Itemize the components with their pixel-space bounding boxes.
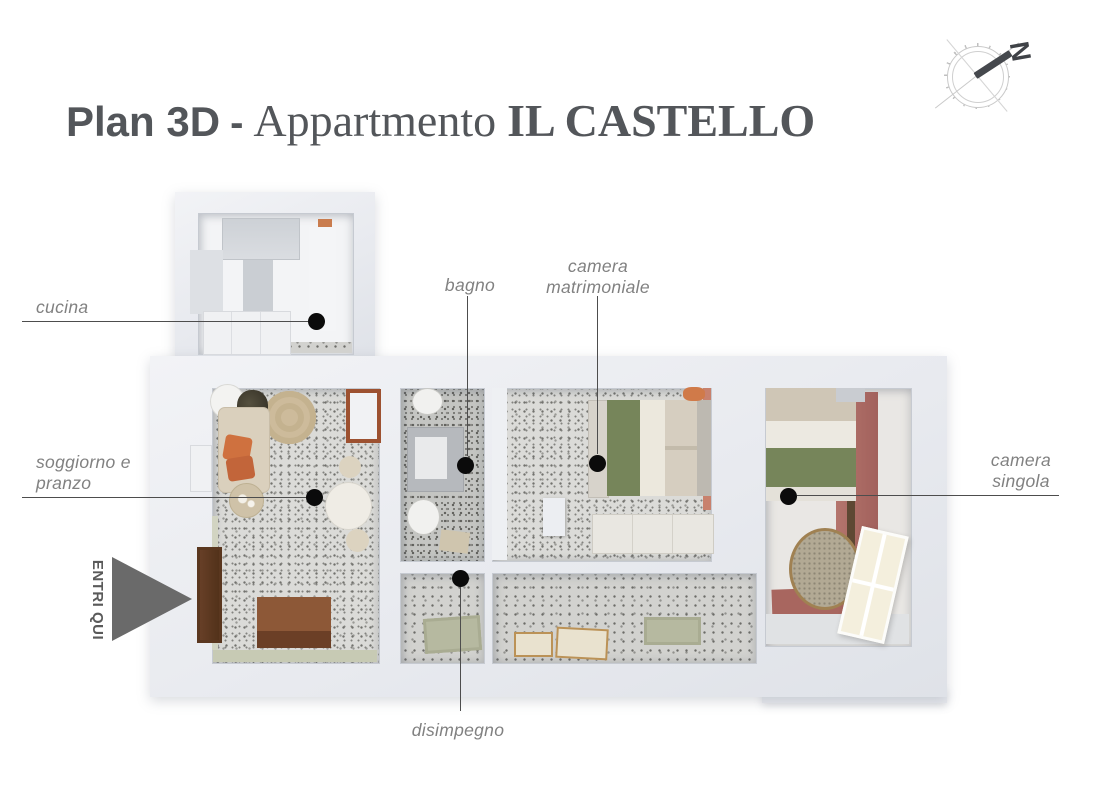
dining-chair-bottom	[346, 529, 369, 552]
marker-dot-camera-singola	[780, 488, 797, 505]
master-bed-headboard	[697, 400, 711, 496]
kitchen-cabinet-left	[190, 250, 223, 314]
bidet	[412, 388, 443, 415]
dining-table	[325, 482, 372, 530]
label-camera-matrimoniale: camera matrimoniale	[518, 256, 678, 297]
kitchen-cabinet-mid	[243, 260, 273, 311]
leader-line-soggiorno	[22, 497, 306, 498]
label-disimpegno: disimpegno	[396, 720, 520, 741]
label-bagno: bagno	[408, 275, 532, 296]
toilet	[407, 499, 440, 535]
floor-plan: cucina soggiorno e pranzo bagno camera m…	[0, 0, 1095, 793]
label-soggiorno: soggiorno e pranzo	[36, 452, 131, 493]
floor-plan-page: Plan 3D-AppartmentoIL CASTELLO N	[0, 0, 1095, 793]
kitchen-counter	[203, 311, 291, 355]
entry-door	[197, 547, 222, 643]
marker-dot-cucina	[308, 313, 325, 330]
master-wall-stub	[543, 498, 565, 536]
hall-frame-mat-1	[514, 632, 553, 657]
master-bed-green-blanket	[607, 400, 640, 496]
living-wardrobe-panel	[190, 445, 212, 492]
hall-green-mat-right	[644, 617, 701, 645]
label-cucina: cucina	[36, 297, 88, 318]
leader-line-camera-singola	[797, 495, 1059, 496]
living-baseboard-bottom	[213, 650, 377, 662]
master-bed-pillows	[665, 400, 697, 496]
bath-mat	[439, 529, 470, 553]
master-bed-duvet	[640, 400, 665, 496]
kitchen-wall-cabinet	[222, 218, 300, 260]
master-bench	[592, 514, 714, 554]
round-rug	[263, 391, 316, 444]
kitchen-orange-detail	[318, 219, 332, 227]
marker-dot-camera-matrimoniale	[589, 455, 606, 472]
marker-dot-bagno	[457, 457, 474, 474]
label-camera-singola: camera singola	[960, 450, 1082, 491]
sideboard-front	[257, 631, 331, 648]
hall-frame-mat-2	[555, 627, 609, 661]
singola-bed-green-blanket	[766, 448, 856, 487]
hall-green-mat-left	[423, 615, 482, 654]
master-bed-footboard	[588, 400, 609, 498]
singola-wardrobe-box	[836, 388, 865, 402]
master-door-wall-face	[492, 388, 507, 560]
kitchen-floor-patch	[286, 342, 352, 353]
coffee-table	[229, 483, 264, 518]
leader-line-camera-matrimoniale	[597, 296, 598, 454]
marker-dot-disimpegno	[452, 570, 469, 587]
wall-mirror	[346, 389, 381, 443]
master-orange-stool	[683, 387, 705, 401]
marker-dot-soggiorno	[306, 489, 323, 506]
dining-chair-top	[339, 456, 361, 478]
bath-sink	[415, 437, 447, 479]
entry-label: ENTRI QUI	[88, 553, 106, 647]
sofa-cushion-orange-2	[225, 455, 255, 482]
singola-bed-duvet	[766, 421, 856, 448]
sideboard-top	[257, 597, 331, 631]
leader-line-disimpegno	[460, 587, 461, 711]
leader-line-cucina	[22, 321, 308, 322]
leader-line-bagno	[467, 296, 468, 456]
